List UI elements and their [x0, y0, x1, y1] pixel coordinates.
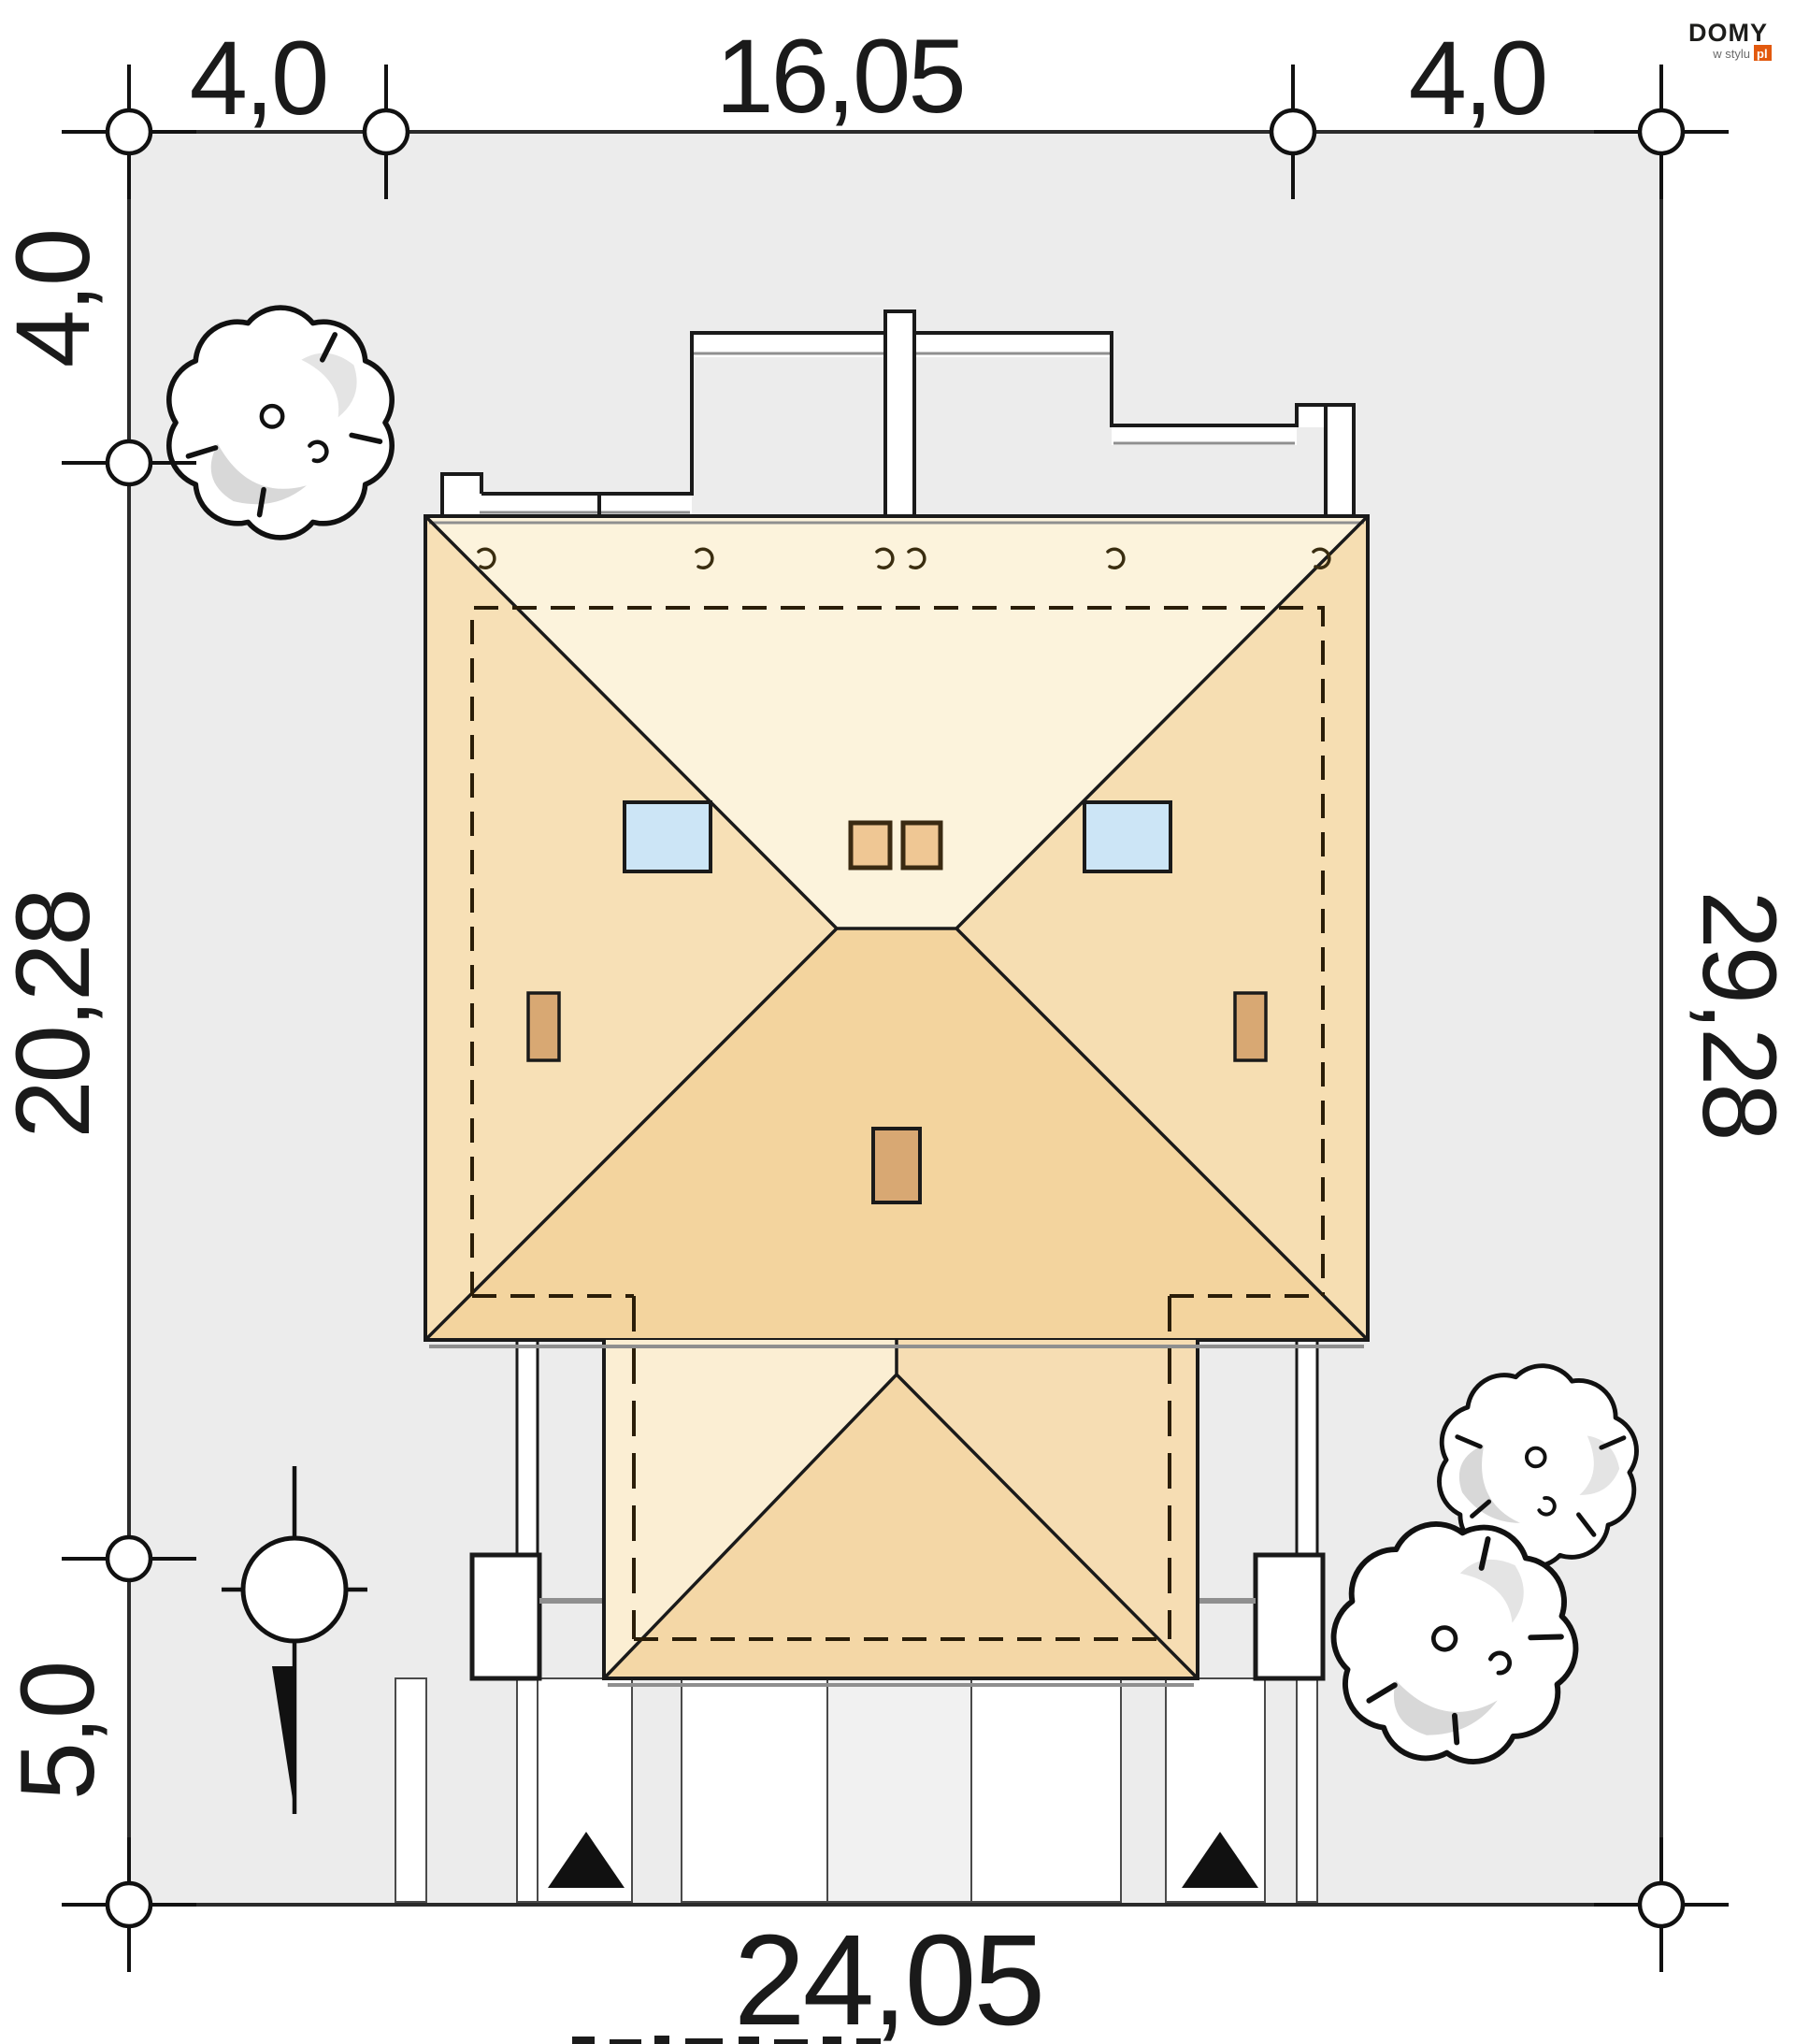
site-plan-drawing: 4,0 16,05 4,0 4,0 20,28 5,0 29,28 24,05 … — [0, 0, 1795, 2044]
tree-icon — [169, 308, 392, 538]
chimney-cap — [903, 823, 941, 868]
site-plan-page: 4,0 16,05 4,0 4,0 20,28 5,0 29,28 24,05 … — [0, 0, 1795, 2044]
brand-logo: DOMY w stylu pl — [1688, 19, 1772, 61]
dimension-marker — [108, 1537, 151, 1580]
dimension-label-left-lower: 5,0 — [0, 1663, 116, 1801]
brand-logo-title: DOMY — [1688, 19, 1768, 47]
main-roof — [425, 516, 1368, 1340]
dimension-label-top-left: 4,0 — [190, 20, 327, 137]
chimney-cap — [851, 823, 890, 868]
roof-vent — [528, 993, 559, 1060]
brand-logo-subtitle: w stylu — [1712, 47, 1750, 61]
dimension-marker — [108, 110, 151, 153]
dimension-label-top-middle: 16,05 — [715, 18, 963, 135]
dimension-marker — [108, 1883, 151, 1926]
roof-vent — [873, 1129, 920, 1202]
dimension-label-bottom: 24,05 — [734, 1908, 1042, 2044]
dimension-label-top-right: 4,0 — [1409, 20, 1546, 137]
dimension-label-left-upper: 4,0 — [0, 231, 111, 368]
skylight-window — [1084, 802, 1170, 871]
brand-logo-tld: pl — [1757, 47, 1768, 61]
chimney-stack — [885, 311, 914, 522]
dimension-marker — [365, 110, 408, 153]
roof-vent — [1235, 993, 1266, 1060]
dimension-label-left-middle: 20,28 — [0, 890, 111, 1138]
dimension-label-right: 29,28 — [1681, 890, 1795, 1138]
clipped-footer-marks — [572, 2036, 881, 2044]
dimension-marker — [1640, 110, 1683, 153]
dimension-marker — [1271, 110, 1314, 153]
dimension-marker — [108, 441, 151, 484]
driveway — [395, 1678, 1317, 1902]
skylight-window — [625, 802, 711, 871]
dimension-marker — [1640, 1883, 1683, 1926]
